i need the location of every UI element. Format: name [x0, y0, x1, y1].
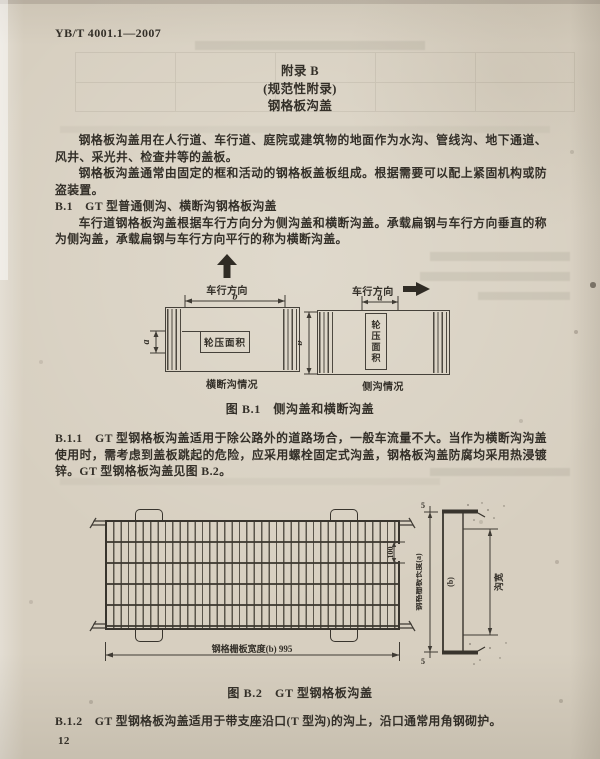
svg-text:(b): (b): [446, 577, 455, 587]
heading-b1: B.1 GT 型普通侧沟、横断沟钢格板沟盖: [55, 198, 547, 215]
svg-text:a: a: [378, 294, 383, 304]
fixing-clip: [135, 629, 163, 642]
scan-edge-top: [0, 0, 600, 4]
dimension-100: 100: [381, 534, 407, 572]
svg-text:钢格栅板宽度(b) 995: 钢格栅板宽度(b) 995: [212, 643, 293, 654]
body-text: 钢格板沟盖用在人行道、车行道、庭院或建筑物的地面作为水沟、管线沟、地下通道、风井…: [55, 132, 547, 248]
doc-number: YB/T 4001.1—2007: [55, 26, 161, 41]
page-number: 12: [58, 735, 70, 747]
scan-edge-left: [0, 0, 8, 280]
scanned-document-page: YB/T 4001.1—2007 附录 B (规范性附录) 钢格板沟盖 钢格板沟…: [0, 0, 600, 759]
dimension-b-side: b: [298, 306, 318, 380]
paragraph-b11-wrap: B.1.1 GT 型钢格板沟盖适用于除公路外的道路场合，一般车流量不大。当作为横…: [55, 430, 547, 480]
wheel-area-label: 轮压面积: [204, 335, 246, 349]
svg-text:b: b: [298, 341, 305, 346]
fixing-clip: [330, 509, 358, 521]
svg-text:a: a: [144, 340, 152, 345]
paragraph-b11: B.1.1 GT 型钢格板沟盖适用于除公路外的道路场合，一般车流量不大。当作为横…: [55, 430, 547, 480]
grating-section-view: 5 5 钢格栅板长度(a) (b) 沟宽: [416, 498, 512, 668]
bleed-through-ghost: [478, 292, 570, 300]
dimension-width: 钢格栅板宽度(b) 995: [103, 642, 402, 666]
break-symbol: [85, 620, 106, 633]
appendix-title-line3: 钢格板沟盖: [0, 98, 600, 116]
svg-text:5: 5: [421, 501, 425, 510]
hatch-left: [167, 309, 182, 370]
appendix-title-line2: (规范性附录): [0, 81, 600, 99]
fixing-clip: [135, 509, 163, 521]
grating-line: [182, 331, 200, 332]
svg-text:b: b: [233, 293, 238, 303]
figure-b2-caption: 图 B.2 GT 型钢格板沟盖: [0, 684, 600, 701]
hatch-right: [433, 312, 448, 373]
fixing-clip: [330, 629, 358, 642]
bleed-through-ghost: [195, 41, 425, 50]
cross-trench-caption: 横断沟情况: [172, 376, 292, 391]
appendix-title-line1: 附录 B: [0, 63, 600, 81]
side-trench-caption: 侧沟情况: [333, 378, 433, 393]
figure-b1-caption: 图 B.1 侧沟盖和横断沟盖: [0, 400, 600, 417]
bleed-through-ghost: [430, 252, 570, 261]
wheel-area-box-right: 轮压面积: [365, 313, 387, 370]
paragraph-b12-wrap: B.1.2 GT 型钢格板沟盖适用于带支座沿口(T 型沟)的沟上，沿口通常用角钢…: [55, 713, 555, 730]
dimension-a-top: a: [352, 294, 412, 310]
svg-text:钢格栅板长度(a): 钢格栅板长度(a): [416, 553, 423, 611]
break-symbol: [85, 517, 106, 530]
hatch-right: [283, 309, 298, 370]
wheel-area-box-left: 轮压面积: [200, 331, 250, 353]
paragraph-intro1: 钢格板沟盖用在人行道、车行道、庭院或建筑物的地面作为水沟、管线沟、地下通道、风井…: [55, 132, 547, 165]
svg-text:沟宽: 沟宽: [493, 573, 504, 591]
paragraph-intro2: 钢格板沟盖通常由固定的框和活动的钢格板盖板组成。根据需要可以配上紧固机构或防盗装…: [55, 165, 547, 198]
appendix-title-block: 附录 B (规范性附录) 钢格板沟盖: [0, 63, 600, 116]
bleed-through-ghost: [420, 272, 570, 281]
grating-plan-view: [105, 520, 400, 630]
paragraph-b12: B.1.2 GT 型钢格板沟盖适用于带支座沿口(T 型沟)的沟上，沿口通常用角钢…: [55, 713, 555, 730]
scan-speckles: [0, 0, 2, 2]
dimension-b-top: b: [178, 293, 302, 308]
svg-text:100: 100: [386, 547, 395, 559]
up-arrow-icon: [215, 253, 239, 280]
dimension-a-side: a: [144, 324, 168, 362]
hatch-left: [319, 312, 334, 373]
paragraph-b1-body: 车行道钢格板沟盖根据车行方向分为侧沟盖和横断沟盖。承载扁钢与车行方向垂直的称为侧…: [55, 215, 547, 248]
svg-text:5: 5: [421, 657, 425, 666]
wheel-area-label: 轮压面积: [370, 320, 383, 364]
